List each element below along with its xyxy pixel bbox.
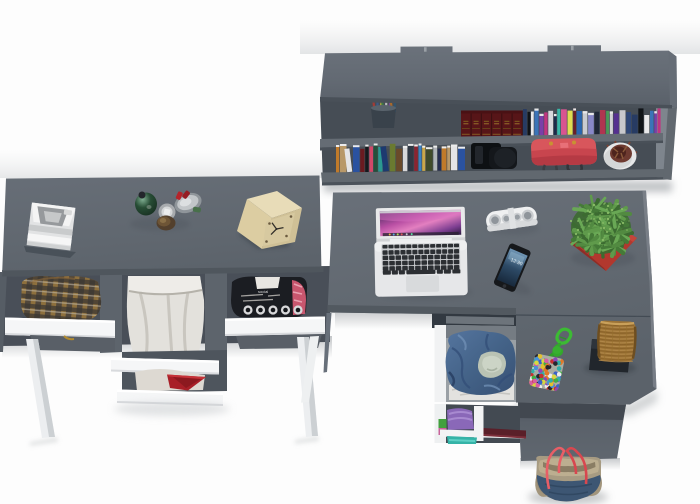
svg-text:social: social [258,289,268,294]
